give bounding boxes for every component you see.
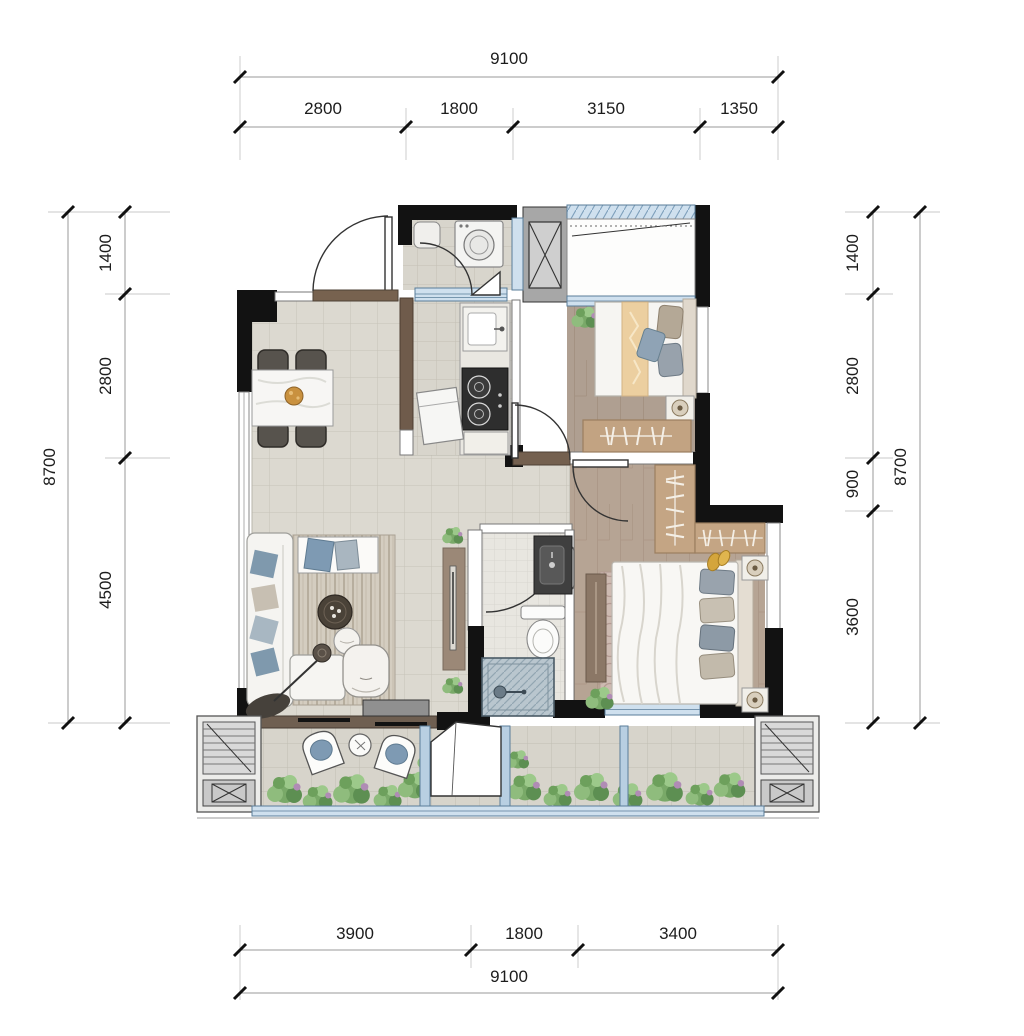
bedroom2-bed xyxy=(595,299,696,398)
stove xyxy=(462,368,508,430)
master-nightstand-top xyxy=(742,556,768,580)
entry-door xyxy=(313,216,398,301)
dim-top: 9100 2800 1800 3150 1350 xyxy=(234,49,784,133)
window-master-right xyxy=(767,523,780,630)
dim-bottom-total: 9100 xyxy=(490,967,528,986)
wall-left-partition xyxy=(275,292,315,301)
balcony-mullion xyxy=(420,726,430,808)
floor-plan-page: 9100 2800 1800 3150 1350 3900 1800 3400 … xyxy=(0,0,1024,1036)
dim-left-seg1: 2800 xyxy=(96,357,115,395)
dim-left-total: 8700 xyxy=(40,448,59,486)
armchair xyxy=(343,645,389,697)
bedroom2-wardrobe xyxy=(583,420,691,452)
ac-closet-window xyxy=(512,218,523,290)
bedroom2-threshold xyxy=(513,452,570,465)
dim-top-seg0: 2800 xyxy=(304,99,342,118)
headboard xyxy=(683,299,696,398)
master-bed xyxy=(612,560,753,706)
balcony-mullion xyxy=(620,726,628,808)
master-balcony-door xyxy=(605,704,700,715)
ac-platform-right xyxy=(755,716,819,812)
dim-right-seg2: 900 xyxy=(843,470,862,498)
master-nightstand-bottom xyxy=(742,688,768,712)
dim-left-seg2: 4500 xyxy=(96,571,115,609)
dim-right-seg3: 3600 xyxy=(843,598,862,636)
wall-kitchen-lower xyxy=(400,430,413,455)
ac-closet xyxy=(512,207,567,302)
balcony-glazing xyxy=(197,806,819,818)
dim-left: 8700 1400 2800 4500 xyxy=(40,206,131,729)
fridge xyxy=(417,387,464,444)
food-plate xyxy=(285,387,303,405)
wall-bedroom2-right-upper xyxy=(695,205,710,307)
dim-top-seg2: 3150 xyxy=(587,99,625,118)
ac-platform-left xyxy=(197,716,261,812)
dim-right-seg1: 2800 xyxy=(843,357,862,395)
wall-utility-left xyxy=(398,205,412,245)
shower xyxy=(482,658,554,716)
dim-top-seg3: 1350 xyxy=(720,99,758,118)
washing-machine xyxy=(455,221,503,267)
tv-console xyxy=(443,548,465,670)
bay-window-bedroom2 xyxy=(567,205,695,302)
dim-top-seg1: 1800 xyxy=(440,99,478,118)
entry-threshold xyxy=(313,290,398,301)
console-bench xyxy=(298,537,378,573)
wall-step-bar xyxy=(693,505,783,523)
floor-plan-drawing: 9100 2800 1800 3150 1350 3900 1800 3400 … xyxy=(0,0,1024,1036)
wall-top-utility xyxy=(398,205,517,220)
dim-bottom: 3900 1800 3400 9100 xyxy=(234,924,784,999)
dim-top-total: 9100 xyxy=(490,49,528,68)
ac-unit-box xyxy=(529,222,561,288)
equipment-niche xyxy=(363,700,429,716)
wall-left-upper xyxy=(237,290,252,392)
balcony-table xyxy=(349,734,371,756)
bedroom2-door xyxy=(512,403,570,465)
wall-kitchen-marble xyxy=(400,298,413,430)
dim-left-seg0: 1400 xyxy=(96,234,115,272)
dim-bottom-seg1: 1800 xyxy=(505,924,543,943)
dim-bottom-seg0: 3900 xyxy=(336,924,374,943)
dim-right: 1400 2800 900 3600 8700 xyxy=(843,206,926,729)
balcony-sliding-door xyxy=(252,716,437,728)
window-bedroom2-right xyxy=(697,307,708,393)
dim-right-seg0: 1400 xyxy=(843,234,862,272)
master-dresser xyxy=(586,574,606,682)
vanity xyxy=(534,536,572,594)
dining-table xyxy=(252,370,333,426)
kitchen-sink xyxy=(463,307,507,351)
wall-bath-left xyxy=(468,530,482,630)
kitchen-cabinet xyxy=(464,432,508,454)
shower-head xyxy=(494,686,506,698)
wall-bath-top xyxy=(480,524,572,533)
dim-right-total: 8700 xyxy=(891,448,910,486)
bedroom2-nightstand xyxy=(666,396,694,420)
balcony-door-panel xyxy=(431,722,501,796)
dim-bottom-seg2: 3400 xyxy=(659,924,697,943)
